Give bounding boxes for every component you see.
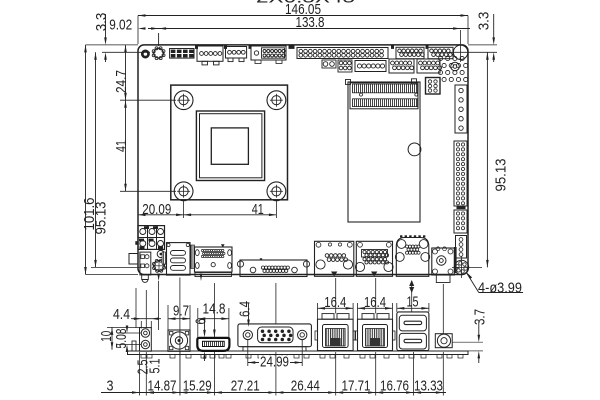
svg-text:9.02: 9.02 [109,17,132,34]
svg-text:95.13: 95.13 [493,159,510,192]
svg-text:95.13: 95.13 [93,202,110,235]
svg-text:14.8: 14.8 [203,301,226,318]
svg-text:16.4: 16.4 [364,294,386,311]
svg-text:24.7: 24.7 [113,70,130,93]
svg-text:3.3: 3.3 [476,12,493,31]
svg-text:133.8: 133.8 [296,14,325,31]
svg-text:5.1: 5.1 [147,359,164,374]
svg-text:16.76: 16.76 [380,378,409,395]
svg-text:6: 6 [193,319,210,325]
svg-text:15: 15 [407,294,419,311]
svg-text:27.21: 27.21 [231,378,260,395]
svg-text:3.3: 3.3 [93,13,110,32]
svg-text:6.4: 6.4 [237,301,254,317]
svg-text:14.87: 14.87 [148,378,177,395]
svg-text:16.4: 16.4 [324,294,346,311]
svg-text:3: 3 [107,378,114,395]
svg-text:2X0.5X45°: 2X0.5X45° [256,0,364,7]
svg-text:20.09: 20.09 [142,201,171,218]
svg-text:24.99: 24.99 [260,354,289,371]
svg-text:9.7: 9.7 [173,303,189,320]
svg-text:3.7: 3.7 [472,309,489,325]
svg-text:4-ø3.99: 4-ø3.99 [478,280,522,297]
svg-text:17.71: 17.71 [342,378,371,395]
svg-text:5.08: 5.08 [113,329,130,349]
svg-text:13.33: 13.33 [414,378,443,395]
svg-text:26.44: 26.44 [291,378,320,395]
svg-text:41: 41 [252,201,264,218]
svg-text:41: 41 [113,140,130,152]
svg-text:4.4: 4.4 [113,306,130,323]
svg-text:15.29: 15.29 [183,378,212,395]
